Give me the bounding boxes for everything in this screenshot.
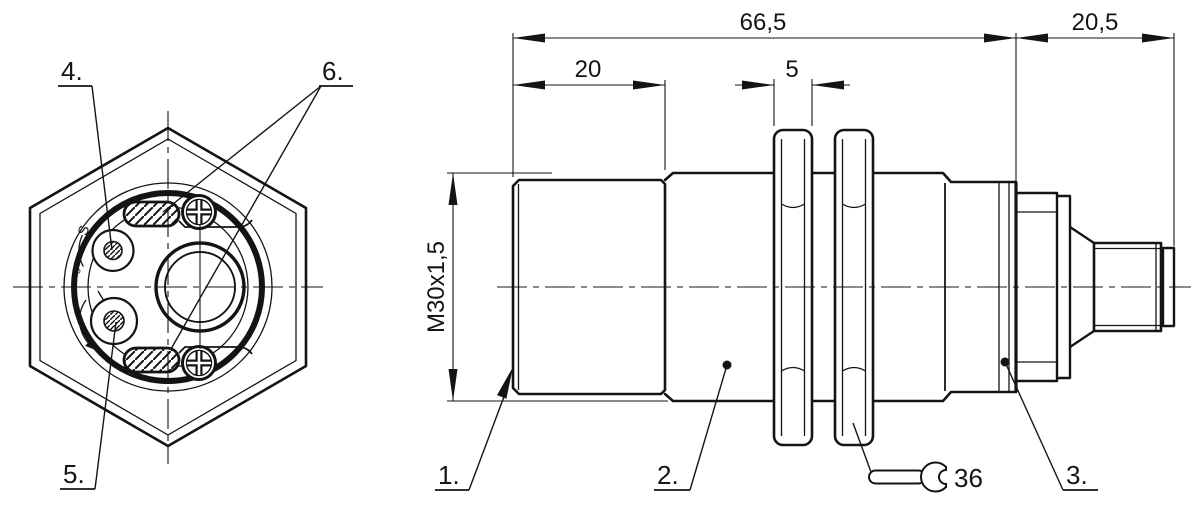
callout-5-label: 5. xyxy=(63,459,85,489)
sensor-dimensional-drawing: S s 4. 5. 6. xyxy=(0,0,1200,508)
front-view: S s 4. 5. 6. xyxy=(13,56,353,489)
callout-2-label: 2. xyxy=(657,460,679,490)
wrench-icon xyxy=(869,463,946,492)
callout-6-label: 6. xyxy=(322,56,344,86)
dim-connector-length: 20,5 xyxy=(1016,9,1174,43)
dim-head-text: 20 xyxy=(575,56,602,83)
dim-overall-text: 66,5 xyxy=(740,9,787,36)
callout-3-label: 3. xyxy=(1066,460,1088,490)
mounting-slot-bottom xyxy=(124,348,179,372)
dim-overall-length: 66,5 xyxy=(513,9,1016,43)
dim-connector-text: 20,5 xyxy=(1072,9,1119,36)
callout-4-label: 4. xyxy=(61,56,83,86)
phillips-screw-bottom xyxy=(183,347,216,380)
drawing-canvas: S s 4. 5. 6. xyxy=(0,0,1200,508)
callout-1-label: 1. xyxy=(438,460,460,490)
dim-nut-thickness: 5 xyxy=(735,56,850,90)
dim-nut-text: 5 xyxy=(785,56,798,83)
phillips-screw-top xyxy=(183,196,216,229)
dim-thread-text: M30x1,5 xyxy=(423,241,450,333)
pot-scale-max-label: S xyxy=(74,223,92,237)
dim-thread-spec: M30x1,5 xyxy=(423,173,458,401)
dim-head-length: 20 xyxy=(513,56,665,90)
callout-1: 1. xyxy=(435,367,513,490)
callout-5: 5. xyxy=(60,322,116,489)
side-view xyxy=(497,130,1191,445)
wrench-size-text: 36 xyxy=(954,463,983,493)
